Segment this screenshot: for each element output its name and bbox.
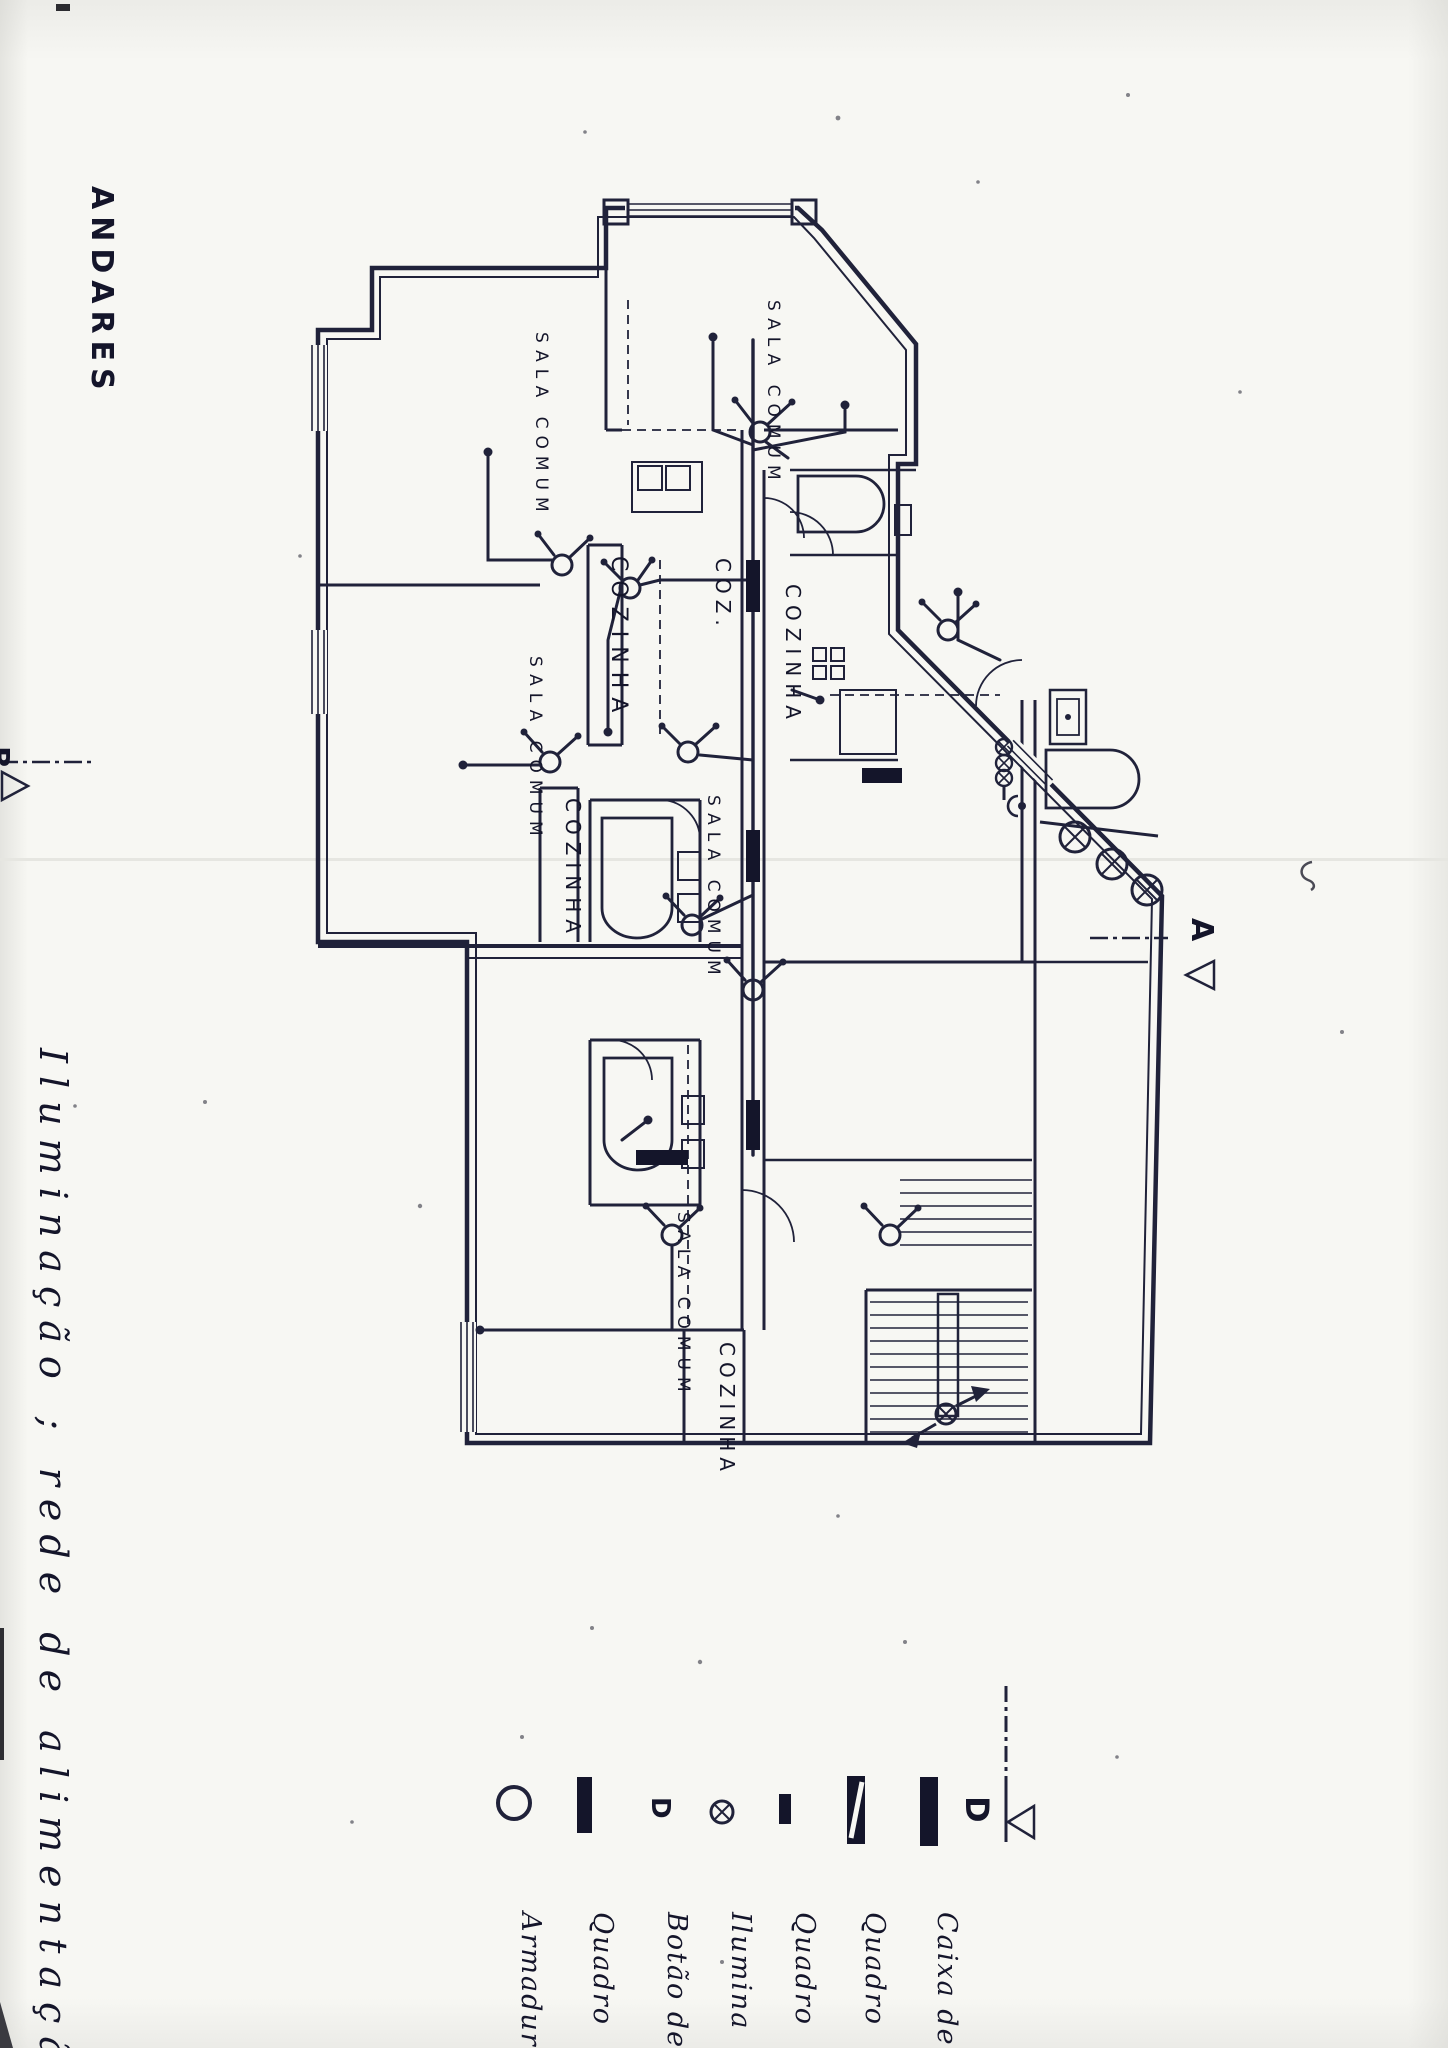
quadro-striped-bar-icon: [847, 1776, 865, 1844]
legend-labels: Armadura Quadro Botão de Ilumina Quadro …: [515, 1909, 962, 2048]
edge-mark: [0, 1628, 4, 1760]
caixa-thick-bar-icon: [920, 1777, 938, 1846]
dashed-lines: [622, 300, 1000, 1325]
room-label-cozinha: COZINHA: [606, 556, 631, 721]
legend-label: Armadura: [515, 1909, 546, 2048]
room-label-cozinha: COZINHA: [561, 798, 585, 940]
legend-label: Quadro: [789, 1912, 820, 2026]
bathtub: [798, 476, 884, 532]
section-marker-a: A: [1184, 918, 1219, 942]
room-label-sala-comum: SALA COMUM: [525, 656, 545, 843]
kitchen-stove: [813, 648, 844, 679]
quadro-bar-icon: [577, 1777, 592, 1833]
specks: [73, 93, 1344, 1964]
room-label-cozinha: COZINHA: [715, 1342, 739, 1477]
iluminacao-crossed-circle-icon: [711, 1801, 733, 1823]
room-label-sala-comum: SALA COMUM: [703, 795, 723, 982]
door-swings: [612, 498, 1022, 1242]
legend-label: Botão de: [661, 1911, 692, 2048]
botao-d-icon: D: [645, 1797, 675, 1819]
stair-treads: [870, 1180, 1032, 1432]
bathtub: [602, 818, 672, 938]
floor-plan-drawing: ANDARES Iluminação ; rede de alimentação: [0, 0, 1448, 2048]
room-label-cozinha: COZINHA: [781, 584, 805, 726]
room-label-sala-comum: SALA COMUM: [763, 300, 783, 487]
corner-mark: [0, 2002, 13, 2048]
legend-label: Quadro: [587, 1912, 618, 2026]
paper-crease: [0, 858, 1448, 861]
section-marker-b: B: [0, 746, 15, 769]
building-walls: [309, 200, 1162, 1443]
quadro-small-bar-icon: [779, 1794, 791, 1824]
room-label-coz-partial: COZ.: [711, 558, 735, 632]
top-edge-mark: [56, 4, 70, 11]
interior-walls: [318, 268, 1158, 1443]
stair-stringer: [938, 1294, 958, 1416]
scan-artifacts: [0, 4, 1448, 2048]
bathtub: [1046, 750, 1139, 808]
handwritten-note: Iluminação ; rede de alimentação: [31, 1047, 75, 2048]
legend: D D Armadura Quadro Botão de Ilumina Qua…: [498, 1686, 1034, 2048]
armadura-circle-icon: [498, 1787, 530, 1819]
section-marker-d: D: [958, 1796, 996, 1823]
scanned-drawing-page: ANDARES Iluminação ; rede de alimentação: [0, 0, 1448, 2048]
staircase: [870, 1180, 1032, 1448]
section-triangle-a: [1186, 961, 1214, 989]
wc-fixtures: [678, 505, 1086, 1168]
stray-pen-mark: [1302, 862, 1314, 890]
page-title: ANDARES: [84, 186, 119, 397]
legend-label: Quadro: [859, 1912, 890, 2026]
legend-section-marker-d: D: [958, 1686, 1034, 1842]
legend-label: Caixa de: [931, 1912, 962, 2047]
section-triangle-b: [2, 772, 28, 800]
room-label-sala-comum: SALA COMUM: [531, 332, 551, 519]
room-label-sala-comum: SALA COMUM: [673, 1212, 693, 1399]
quadro-boxes-on-plan: [636, 560, 902, 1165]
legend-label: Ilumina: [725, 1911, 756, 2030]
exterior-wall-inner-line: [327, 217, 1152, 1434]
wc-dot: [1065, 714, 1071, 720]
